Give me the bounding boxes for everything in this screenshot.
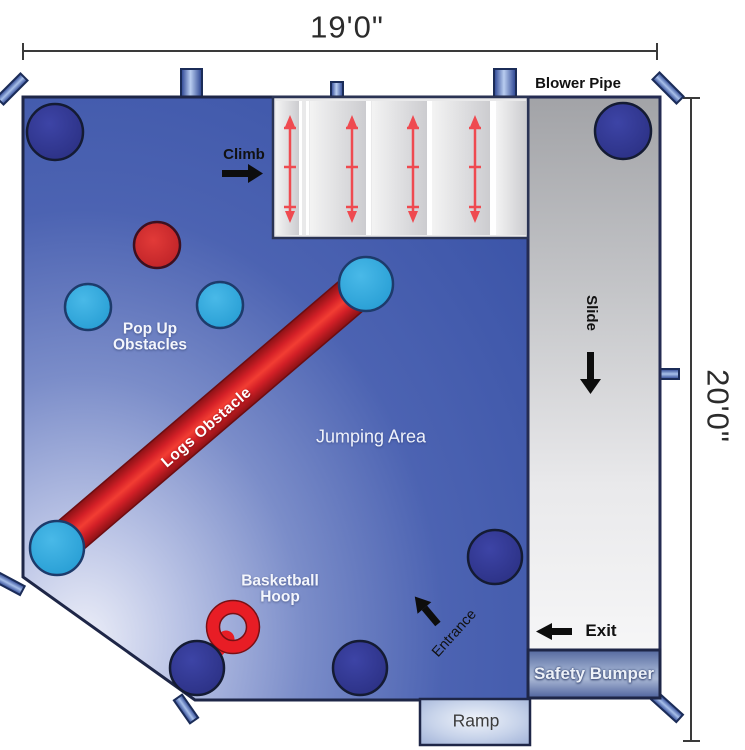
height-dimension-label: 20'0"	[701, 369, 734, 443]
bounce-house-floor-plan: 19'0" 20'0" Blower Pipe Climb Slide Pop …	[0, 0, 745, 750]
width-dimension-label: 19'0"	[310, 12, 384, 45]
blower-pipe-left	[181, 69, 202, 99]
width-dimension-line	[23, 43, 657, 60]
safety-bumper-label: Safety Bumper	[534, 665, 654, 683]
anchor-tab-left	[0, 573, 25, 595]
red-obstacle	[134, 222, 180, 268]
blower-pipes	[181, 69, 516, 99]
blower-pipe-right	[494, 69, 516, 99]
navy-obstacle	[468, 530, 522, 584]
pop-up-obstacles-label-line2: Obstacles	[113, 338, 187, 354]
exit-label: Exit	[585, 622, 616, 640]
blower-pipe-label: Blower Pipe	[535, 76, 621, 92]
basketball-hoop-label-line1: Basketball	[241, 574, 319, 590]
navy-obstacle	[170, 641, 224, 695]
ramp-label: Ramp	[453, 712, 500, 731]
navy-obstacle	[595, 103, 651, 159]
slide-label: Slide	[583, 295, 599, 331]
navy-obstacle	[333, 641, 387, 695]
cyan-obstacle	[197, 282, 243, 328]
climb-label: Climb	[223, 147, 265, 163]
jumping-area-label: Jumping Area	[316, 427, 426, 446]
basketball-hoop-label: Basketball Hoop	[241, 574, 319, 607]
cyan-obstacle-log-end	[339, 257, 393, 311]
navy-obstacle	[27, 104, 83, 160]
cyan-obstacle	[65, 284, 111, 330]
basketball-hoop-label-line2: Hoop	[241, 590, 319, 606]
floor-plan-graphic	[0, 0, 745, 750]
pop-up-obstacles-label-line1: Pop Up	[113, 322, 187, 338]
height-dimension-line	[683, 98, 700, 741]
pop-up-obstacles-label: Pop Up Obstacles	[113, 322, 187, 355]
climbing-wall	[273, 97, 528, 238]
cyan-obstacle-log-end	[30, 521, 84, 575]
